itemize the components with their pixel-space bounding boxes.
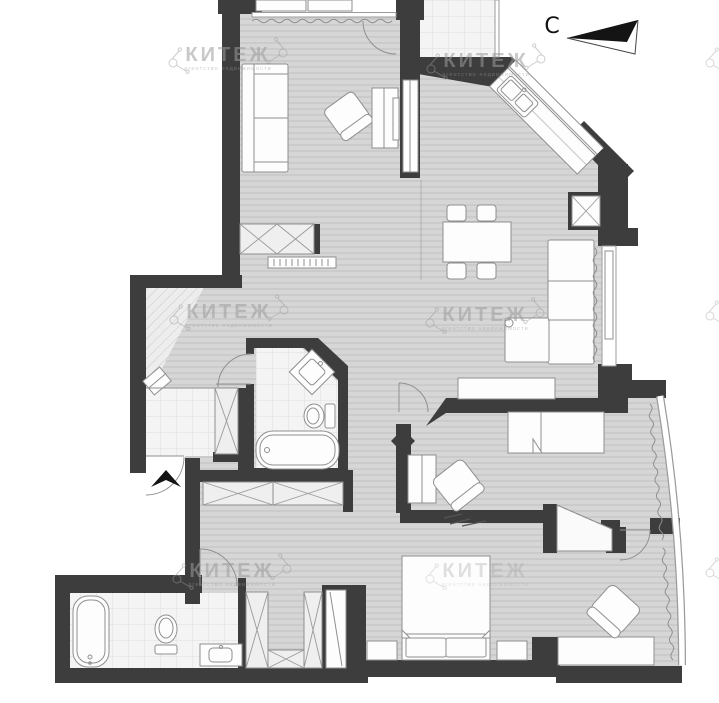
floor-plan-page: КИТЕЖ агентство недвижимости КИТЕЖ агент…: [0, 0, 719, 703]
living-window: [252, 13, 396, 18]
pillow: [446, 638, 486, 657]
compass-north-arrow-icon: [567, 20, 638, 42]
balcony-sofa: [308, 0, 352, 11]
l-sofa: [548, 240, 594, 364]
chair: [447, 205, 466, 221]
watermark-subtitle: агентство недвижимости: [184, 66, 272, 72]
floor-plan: КИТЕЖ агентство недвижимости КИТЕЖ агент…: [0, 0, 719, 703]
watermark-subtitle: агентство недвижимости: [441, 326, 529, 332]
vanity: [200, 644, 242, 666]
watermark-subtitle: агентство недвижимости: [442, 72, 530, 78]
bathtub: [256, 431, 339, 469]
watermark-text: КИТЕЖ: [186, 301, 271, 323]
pillow: [406, 638, 446, 657]
tv: [393, 98, 399, 140]
chair: [477, 263, 496, 279]
watermark-subtitle: агентство недвижимости: [185, 323, 273, 329]
watermark: КИТЕЖ агентство недвижимости: [169, 38, 287, 74]
balcony-sofa: [256, 0, 306, 11]
watermark-text: КИТЕЖ: [442, 560, 527, 582]
dining-window: [602, 246, 616, 366]
sideboard: [458, 378, 555, 399]
watermark-logo-icon: [706, 558, 719, 584]
watermark: КИТЕЖ агентство недвижимости: [427, 44, 545, 80]
nightstand: [367, 641, 397, 660]
dresser: [558, 637, 654, 665]
toilet-tank: [325, 404, 335, 428]
watermark-subtitle: агентство недвижимости: [188, 582, 276, 588]
watermark: КИТЕЖ агентство недвижимости: [173, 554, 291, 590]
shoe-bench: [268, 257, 336, 268]
chair: [447, 263, 466, 279]
watermark-text: КИТЕЖ: [185, 44, 270, 66]
watermark-subtitle: агентство недвижимости: [441, 582, 529, 588]
watermark-text: КИТЕЖ: [442, 304, 527, 326]
compass: С: [544, 14, 638, 54]
nightstand: [497, 641, 527, 660]
balcony-glazing: [495, 0, 499, 57]
watermark: КИТЕЖ агентство недвижимости: [426, 560, 529, 589]
watermark: КИТЕЖ агентство недвижимости: [170, 295, 288, 331]
watermark-logo-icon: [706, 48, 719, 74]
watermark: КИТЕЖ агентство недвижимости: [426, 298, 544, 334]
single-bed: [508, 412, 604, 453]
dining-table: [443, 222, 511, 262]
chair: [477, 205, 496, 221]
toilet-tank: [155, 645, 177, 654]
watermark-text: КИТЕЖ: [189, 560, 274, 582]
compass-label: С: [544, 14, 559, 39]
watermark-text: КИТЕЖ: [443, 50, 528, 72]
toilet: [155, 615, 177, 643]
wardrobe: [240, 224, 314, 254]
entry-tile-floor: [146, 388, 217, 456]
watermark-logo-icon: [706, 301, 719, 327]
